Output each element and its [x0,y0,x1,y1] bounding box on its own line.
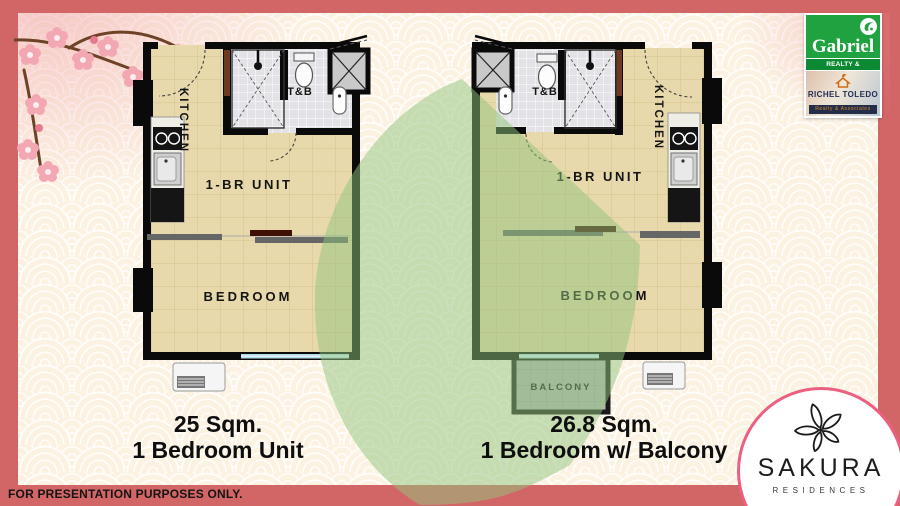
toilet-icon [537,54,557,89]
ac-unit-icon [643,362,685,389]
caption-area: 26.8 Sqm. [474,411,734,437]
refrigerator-cabinet [151,188,184,222]
window [241,354,349,359]
disclaimer-text: FOR PRESENTATION PURPOSES ONLY. [8,487,243,501]
room-label-kitchen: KITCHEN [652,85,664,150]
caption-right-unit: 26.8 Sqm. 1 Bedroom w/ Balcony [474,411,734,463]
room-label-bedroom: BEDROOM [204,289,293,304]
room-label-kitchen: KITCHEN [177,88,189,153]
caption-left-unit: 25 Sqm. 1 Bedroom Unit [88,411,348,463]
floorplan-right: KITCHEN T&B 1-BR UNIT BEDROOM BALCONY [450,33,730,425]
agent-name: RICHEL TOLEDO [806,90,880,99]
toilet-icon [294,53,314,87]
wall-pillar [702,262,722,308]
wall-pillar [702,78,722,124]
agent-badge: RICHEL TOLEDO Realty & Associates [806,71,880,116]
room-label-toilet-bath: T&B [532,86,558,98]
floorplan-left: KITCHEN T&B 1-BR UNIT BEDROOM [128,33,374,405]
room-label-bedroom: BEDROOM [561,288,650,303]
broker-logo-card: Gabriel REALTY & BROKERAGE RICHEL TOLEDO… [804,13,882,118]
leaf-badge-icon [860,18,877,35]
window [519,354,599,359]
room-label-balcony: BALCONY [531,382,592,393]
lavatory-icon [333,87,346,114]
kitchen-counter [668,113,700,222]
project-subtitle: RESIDENCES [740,486,900,495]
unit-label: 1-BR UNIT [206,177,293,192]
sakura-flower-icon [786,398,856,456]
refrigerator-cabinet [668,188,700,222]
broker-name: Gabriel [806,36,880,58]
caption-area: 25 Sqm. [88,411,348,437]
toilet-bath-door [224,50,230,96]
ac-unit-icon [173,363,225,391]
lavatory-icon [499,87,512,114]
wall-pillar [133,80,153,126]
caption-type: 1 Bedroom w/ Balcony [474,437,734,463]
broker-tagline: REALTY & BROKERAGE [806,58,880,70]
room-label-toilet-bath: T&B [287,86,313,98]
caption-type: 1 Bedroom Unit [88,437,348,463]
poster-page: KITCHEN T&B 1-BR UNIT BEDROOM [0,0,900,506]
unit-label: 1-BR UNIT [557,169,644,184]
agent-subtitle: Realty & Associates [809,105,877,114]
broker-logo: Gabriel [806,15,880,58]
wall-pillar [133,268,153,312]
project-name: SAKURA [740,454,900,483]
toilet-bath-door [616,50,622,96]
